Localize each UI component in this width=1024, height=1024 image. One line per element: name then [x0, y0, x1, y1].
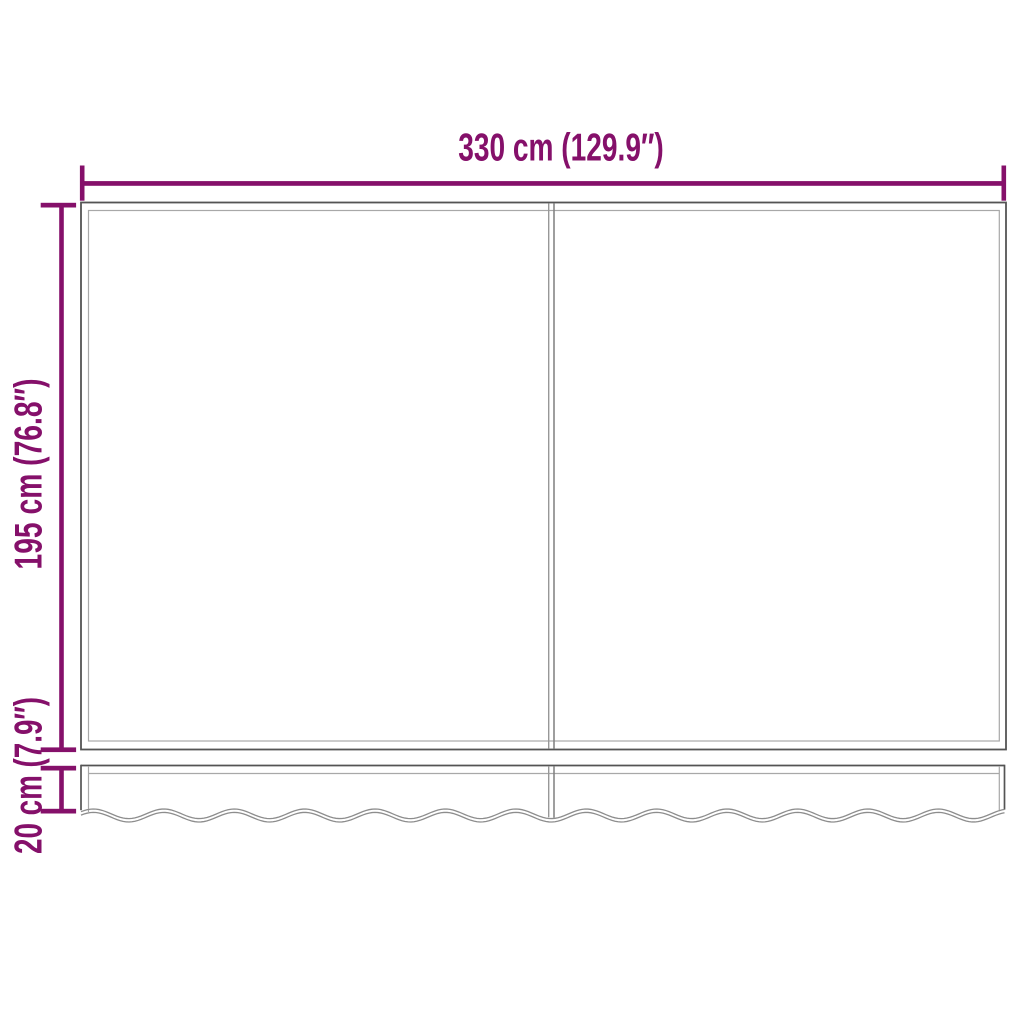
svg-text:330 cm (129.9″): 330 cm (129.9″): [458, 127, 664, 170]
svg-text:195 cm (76.8″): 195 cm (76.8″): [8, 379, 51, 570]
svg-text:20 cm (7.9″): 20 cm (7.9″): [8, 697, 51, 854]
